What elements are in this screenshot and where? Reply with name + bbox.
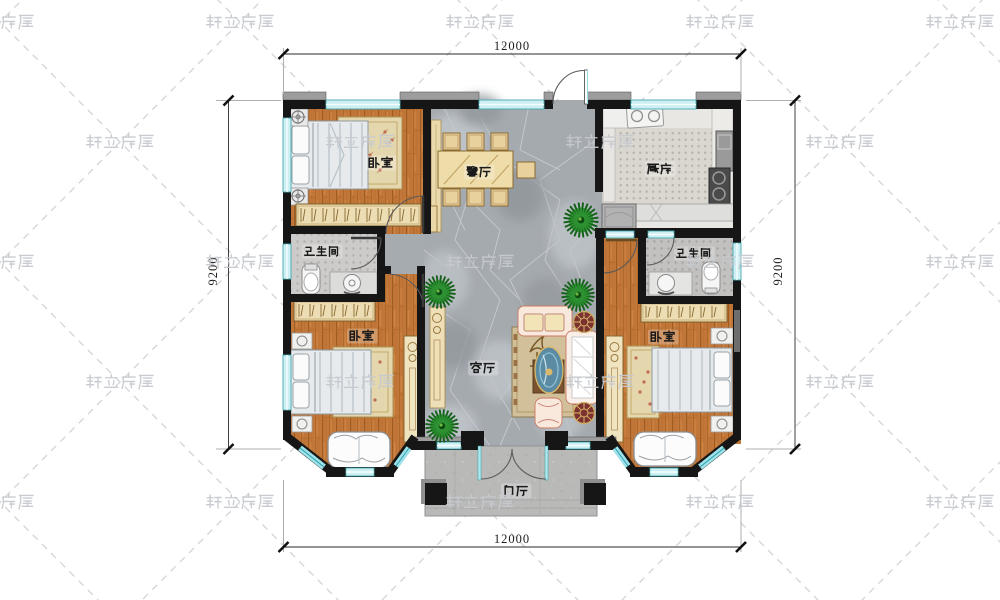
svg-text:9200: 9200 bbox=[771, 257, 785, 286]
svg-text:12000: 12000 bbox=[494, 532, 530, 546]
svg-text:12000: 12000 bbox=[494, 39, 530, 53]
